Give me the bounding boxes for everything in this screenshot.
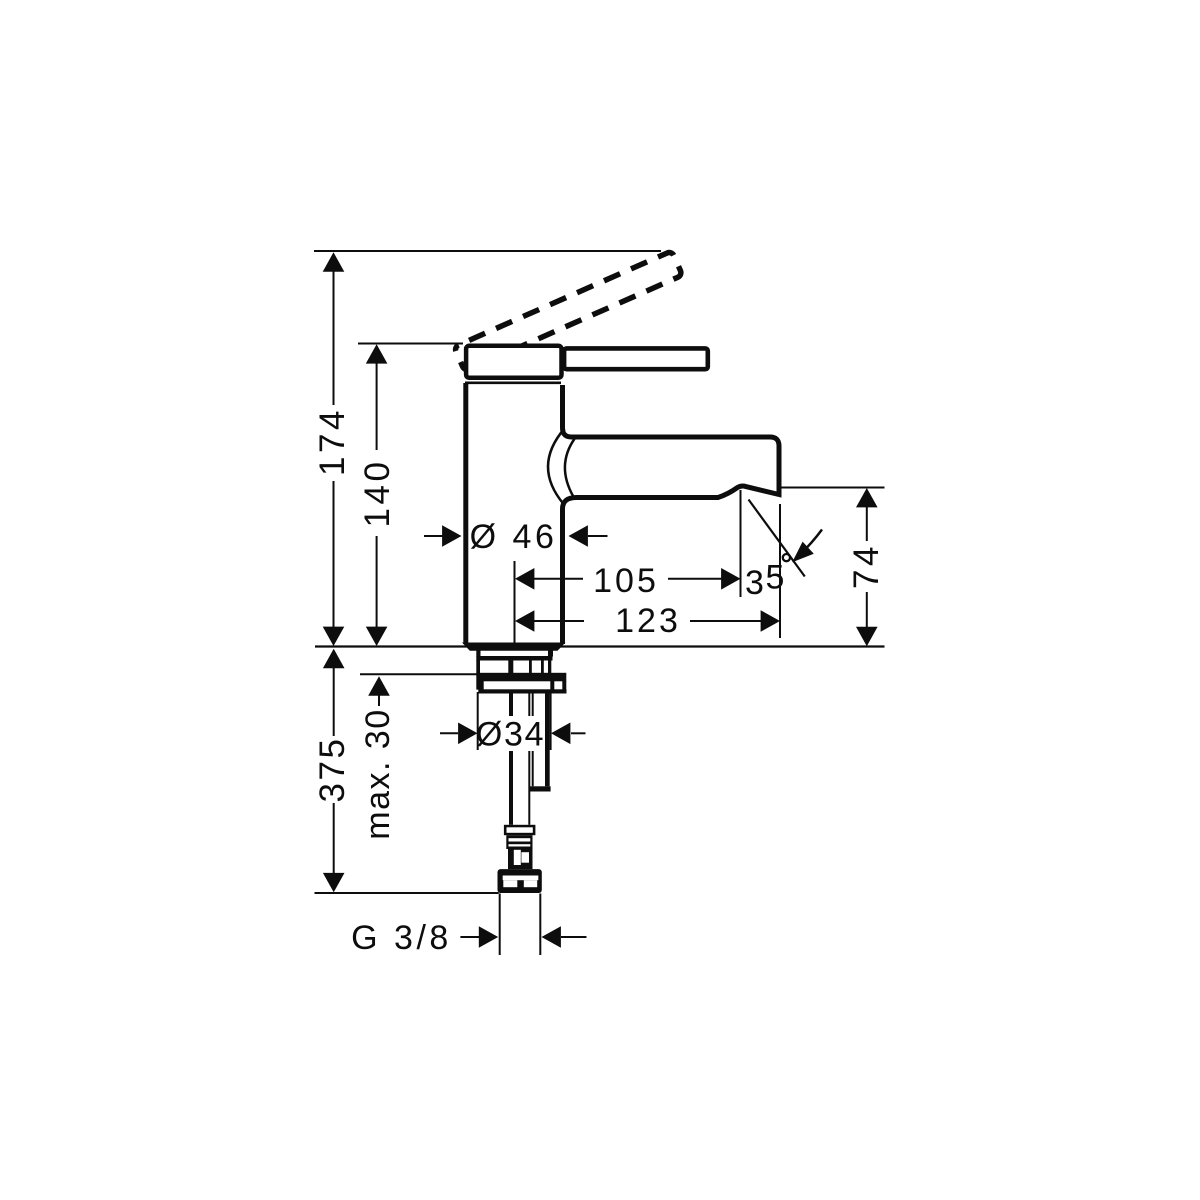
svg-text:Ø 46: Ø 46	[470, 518, 558, 556]
svg-text:Ø34: Ø34	[476, 716, 545, 754]
svg-text:123: 123	[615, 602, 681, 640]
svg-text:5: 5	[766, 559, 788, 597]
svg-text:3: 3	[745, 564, 767, 602]
svg-text:140: 140	[358, 459, 397, 528]
svg-text:max. 30: max. 30	[359, 708, 397, 839]
svg-text:74: 74	[847, 543, 886, 589]
svg-text:174: 174	[313, 407, 352, 476]
svg-text:G 3/8: G 3/8	[351, 919, 452, 957]
svg-text:105: 105	[593, 562, 659, 600]
svg-text:375: 375	[313, 737, 352, 803]
